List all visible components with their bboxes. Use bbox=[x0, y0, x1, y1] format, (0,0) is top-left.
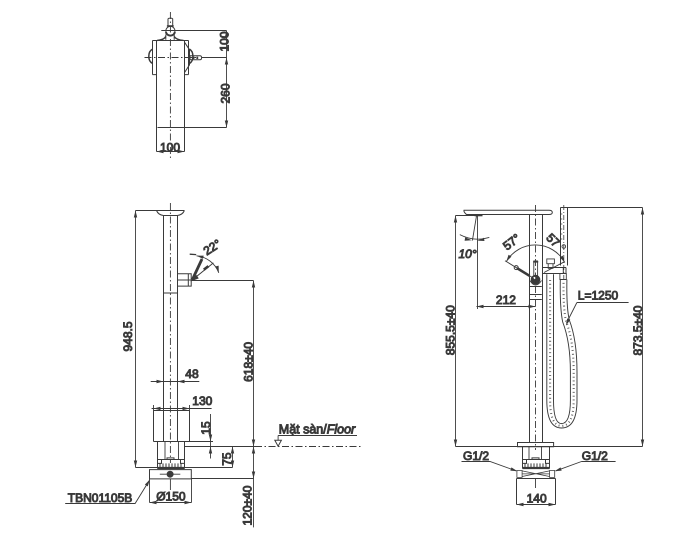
svg-text:TBN01105B: TBN01105B bbox=[68, 491, 132, 505]
svg-text:57°: 57° bbox=[500, 231, 523, 253]
svg-text:618±40: 618±40 bbox=[242, 342, 256, 382]
svg-text:48: 48 bbox=[185, 367, 199, 381]
svg-text:948.5: 948.5 bbox=[121, 321, 135, 351]
svg-text:10°: 10° bbox=[459, 247, 477, 261]
svg-text:130: 130 bbox=[192, 394, 212, 408]
svg-text:Mặt sàn/Floor: Mặt sàn/Floor bbox=[279, 422, 356, 436]
svg-text:212: 212 bbox=[496, 293, 516, 307]
svg-text:100: 100 bbox=[160, 140, 180, 154]
svg-text:Ø150: Ø150 bbox=[156, 490, 186, 504]
svg-text:G1/2: G1/2 bbox=[463, 449, 489, 463]
svg-text:22°: 22° bbox=[201, 236, 224, 258]
svg-text:100: 100 bbox=[218, 31, 232, 51]
svg-text:L=1250: L=1250 bbox=[578, 289, 619, 303]
svg-text:75: 75 bbox=[220, 452, 234, 466]
svg-text:140: 140 bbox=[527, 492, 547, 506]
svg-text:873.5±40: 873.5±40 bbox=[631, 305, 645, 355]
svg-text:260: 260 bbox=[219, 83, 233, 103]
svg-text:G1/2: G1/2 bbox=[582, 449, 608, 463]
svg-text:120±40: 120±40 bbox=[241, 485, 255, 525]
svg-text:855.5±40: 855.5±40 bbox=[444, 305, 458, 355]
svg-text:15: 15 bbox=[199, 421, 213, 435]
